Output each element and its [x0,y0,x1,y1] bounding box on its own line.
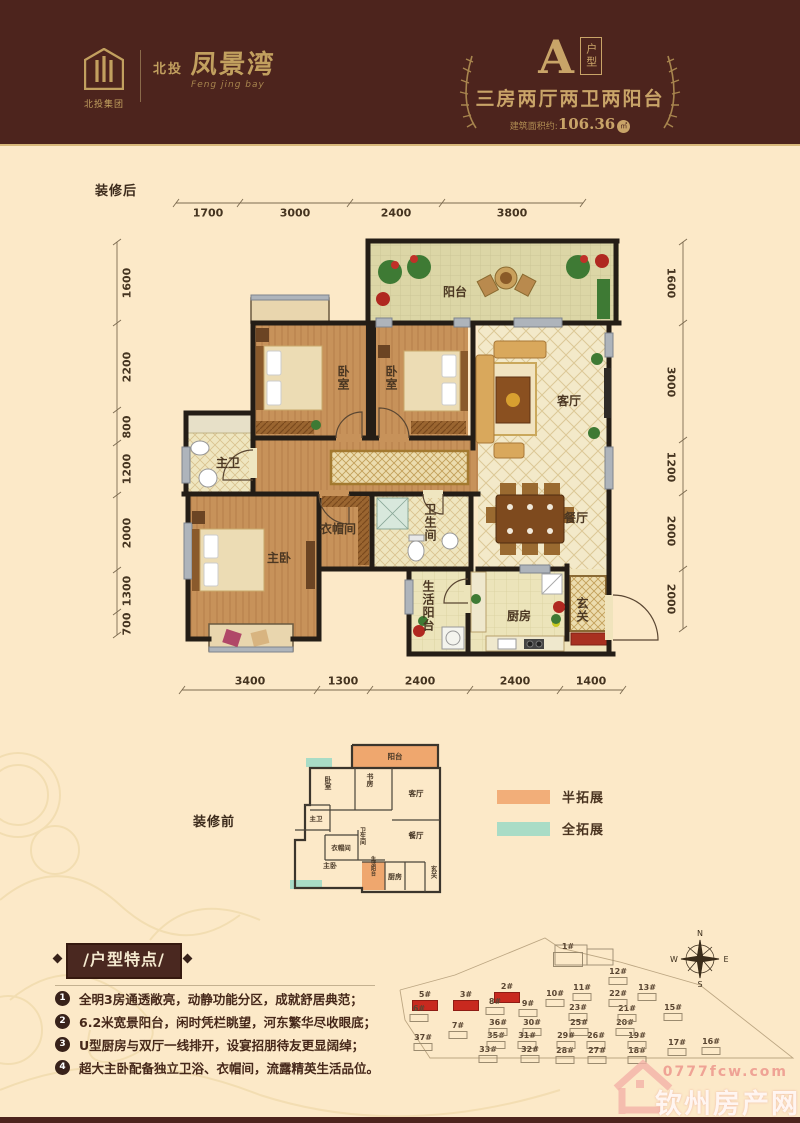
dimension-dims_right-2: 1200 [665,452,678,483]
compass-s: S [697,980,702,988]
dimension-dims_left-5: 1300 [121,576,134,607]
legend-half-expand: 半拓展 [497,787,604,806]
site-building-16: 16# [702,1038,721,1055]
site-building-29: 29# [557,1032,576,1049]
brand-logo: 北投集团 北投 凤景湾 Feng jing bay [82,48,275,110]
dimension-dims_top-0: 1700 [193,207,224,220]
plan-before-label: 装修前 [193,811,235,830]
site-building-17: 17# [668,1039,687,1056]
dimension-dims_left-6: 700 [121,613,134,636]
site-building-11: 11# [573,984,592,1001]
site-building-10: 10# [546,990,565,1007]
unit-area: 建筑面积约:106.36㎡ [462,115,678,133]
laurel-right-icon [660,52,682,130]
dimension-dims_left-1: 2200 [121,352,134,383]
site-building-15: 15# [664,1004,683,1021]
before-label-balcony: 阳台 [388,751,403,761]
dimension-dims_left-4: 2000 [121,518,134,549]
dimension-dims_right-0: 1600 [665,268,678,299]
feature-number-4: 4 [55,1060,70,1075]
site-building-18: 18# [628,1047,647,1064]
entry-doormat [571,633,608,645]
before-label-bathroom: 卫生间 [359,827,366,846]
feature-number-1: 1 [55,991,70,1006]
wall-between-bedrooms [366,323,376,438]
label-balcony: 阳台 [443,284,467,299]
dimension-dims_bottom-0: 3400 [235,675,266,688]
site-building-37: 37# [414,1034,433,1051]
site-map: 1#2#3#5#6#7#8#9#10#11#12#13#15#16#17#18#… [395,925,800,1070]
flyer-page: 北投集团 北投 凤景湾 Feng jing bay [0,0,800,1123]
label-bedroom1: 卧室 [336,365,350,391]
feature-item-4: 4 超大主卧配备独立卫浴、衣帽间，流露精英生活品位。 [55,1057,395,1077]
label-kitchen: 厨房 [507,608,531,623]
before-label-master-bedroom: 主卧 [323,861,337,870]
legend-swatch-full [497,822,550,836]
site-building-36: 36# [489,1019,508,1036]
site-building-32: 32# [521,1046,540,1063]
unit-type-label: 户型 [580,37,602,75]
dimension-dims_top-1: 3000 [280,207,311,220]
site-building-9: 9# [519,1000,538,1017]
unit-type-block: A户型 三房两厅两卫两阳台 建筑面积约:106.36㎡ [462,34,678,130]
dimension-dims_top-2: 2400 [381,207,412,220]
header-banner: 北投集团 北投 凤景湾 Feng jing bay [0,0,800,146]
before-label-bedroom: 卧室 [324,775,332,791]
bay-window-top [251,298,329,323]
unit-subtitle: 三房两厅两卫两阳台 [462,84,678,111]
compass-w: W [670,955,678,964]
feature-text-3: U型厨房与双厅一线排开，设宴招朋待友更显阔绰； [79,1035,364,1054]
legend-swatch-half [497,790,550,804]
compass-n: N [697,929,703,938]
site-building-21: 21# [618,1005,637,1022]
label-service-balcony: 生活阳台 [421,579,435,632]
brand-prefix: 北投 [153,58,183,77]
dimension-dims_left-2: 800 [121,416,134,439]
logo-divider [140,50,141,102]
features-title: /户型特点/ [66,943,182,979]
dimension-dims_right-1: 3000 [665,367,678,398]
site-building-28: 28# [556,1047,575,1064]
feature-item-1: 1 全明3房通透敞亮，动静功能分区，成就舒居典范； [55,988,395,1008]
project-name-script: Feng jing bay [191,80,275,90]
area-unit-badge: ㎡ [617,120,630,133]
dimension-dims_bottom-4: 1400 [576,675,607,688]
developer-group-name: 北投集团 [82,97,126,110]
before-label-service-balcony: 生活阳台 [370,855,376,877]
site-building-12: 12# [609,968,628,985]
developer-logo-icon [84,48,124,90]
label-dining: 餐厅 [564,510,588,525]
dimension-dims_left-0: 1600 [121,268,134,299]
legend-label-half: 半拓展 [562,787,604,806]
feature-text-4: 超大主卧配备独立卫浴、衣帽间，流露精英生活品位。 [79,1058,379,1077]
feature-number-3: 3 [55,1037,70,1052]
label-bedroom2: 卧室 [384,365,398,391]
before-label-study: 书房 [366,772,374,788]
before-teal-top [306,758,332,767]
bottom-brown-strip [0,1117,800,1123]
site-building-3: 3# [453,991,479,1011]
feature-number-2: 2 [55,1014,70,1029]
site-building-7: 7# [449,1022,468,1039]
site-building-22: 22# [609,990,628,1007]
features-divider [55,985,375,986]
dimension-dims_top-3: 3800 [497,207,528,220]
project-name: 凤景湾 [190,52,276,78]
feature-item-2: 2 6.2米宽景阳台，闲时凭栏眺望，河东繁华尽收眼底； [55,1011,395,1031]
before-label-dining: 餐厅 [408,830,424,840]
dimension-dims_bottom-1: 1300 [328,675,359,688]
before-label-master-bath: 主卫 [310,814,324,823]
dimension-dims_bottom-3: 2400 [500,675,531,688]
unit-letter: A [538,34,574,80]
site-building-27: 27# [588,1047,607,1064]
before-label-cloakroom: 衣帽间 [331,843,351,852]
label-foyer: 玄关 [575,596,589,623]
laurel-left-icon [458,52,480,130]
before-label-kitchen: 厨房 [388,872,402,881]
area-label: 建筑面积约: [510,122,558,132]
compass-e: E [723,955,728,964]
label-master-bath: 主卫 [216,455,240,470]
floorplan-before: 阳台 卧室 书房 客厅 主卫 衣帽间 卫生间 餐厅 主卧 生活阳台 厨房 玄关 [278,738,468,900]
dimension-dims_right-4: 2000 [665,584,678,615]
site-building-8: 8# [486,998,505,1015]
dimension-dims_left-3: 1200 [121,454,134,485]
label-bathroom: 卫生间 [423,503,437,542]
site-building-1: 1# [553,943,583,967]
area-value: 106.36 [558,115,615,133]
compass-icon: N S W E [670,928,730,988]
feature-text-1: 全明3房通透敞亮，动静功能分区，成就舒居典范； [79,989,363,1008]
master-bath-counter [186,413,253,433]
label-living: 客厅 [556,393,581,408]
dimension-dims_right-3: 2000 [665,516,678,547]
label-cloakroom: 衣帽间 [320,521,356,536]
feature-text-2: 6.2米宽景阳台，闲时凭栏眺望，河东繁华尽收眼底； [79,1012,376,1031]
site-building-13: 13# [638,984,657,1001]
site-building-6: 6# [410,1005,429,1022]
before-label-living: 客厅 [408,788,424,798]
feature-item-3: 3 U型厨房与双厅一线排开，设宴招朋待友更显阔绰； [55,1034,395,1054]
hallway-rug [331,451,468,484]
floorplan-after: 阳台 卧室 卧室 客厅 餐厅 主卫 衣帽间 主卧 卫生间 生活阳台 厨房 玄关 [110,195,710,700]
before-label-foyer: 玄关 [429,864,437,880]
legend-full-expand: 全拓展 [497,819,604,838]
legend-label-full: 全拓展 [562,819,604,838]
dimension-dims_bottom-2: 2400 [405,675,436,688]
label-master-bedroom: 主卧 [267,550,291,565]
